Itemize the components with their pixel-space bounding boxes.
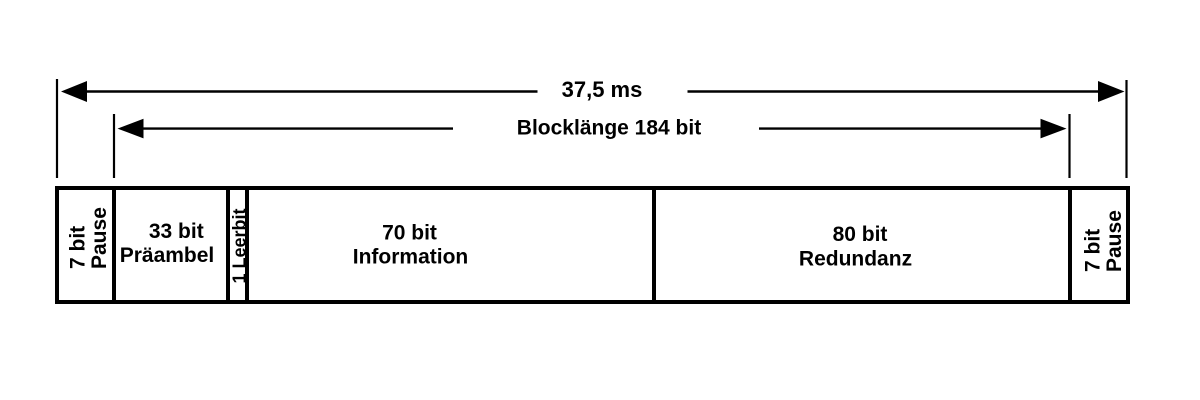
svg-text:70 bit: 70 bit [382,222,437,245]
svg-text:Blocklänge 184 bit: Blocklänge 184 bit [517,117,701,140]
svg-text:Information: Information [353,246,469,269]
svg-text:7 bit: 7 bit [1082,229,1105,272]
svg-text:80 bit: 80 bit [833,223,888,246]
svg-text:1 Leerbit: 1 Leerbit [230,208,250,283]
svg-text:7 bit: 7 bit [67,226,90,269]
svg-text:Pause: Pause [1103,210,1126,272]
svg-text:37,5 ms: 37,5 ms [562,77,643,102]
svg-text:33 bit: 33 bit [149,220,204,243]
svg-text:Pause: Pause [88,207,111,269]
svg-text:Präambel: Präambel [120,244,215,267]
svg-text:Redundanz: Redundanz [799,248,912,271]
